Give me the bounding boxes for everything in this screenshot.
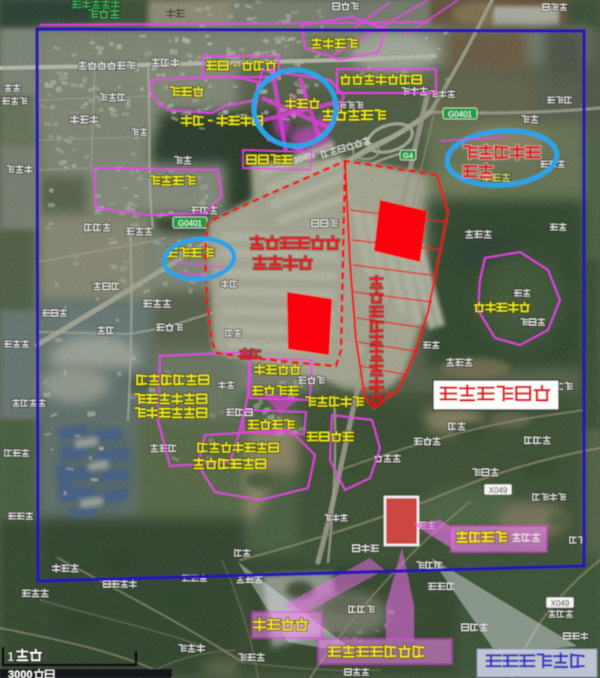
svg-text:1: 1 (7, 649, 14, 664)
svg-text:G4: G4 (403, 151, 413, 160)
svg-text:G0401: G0401 (178, 219, 203, 228)
svg-text:G0401: G0401 (448, 110, 473, 119)
svg-text:X049: X049 (551, 599, 570, 608)
svg-text:X049: X049 (489, 486, 508, 495)
svg-text:3000: 3000 (8, 669, 32, 678)
